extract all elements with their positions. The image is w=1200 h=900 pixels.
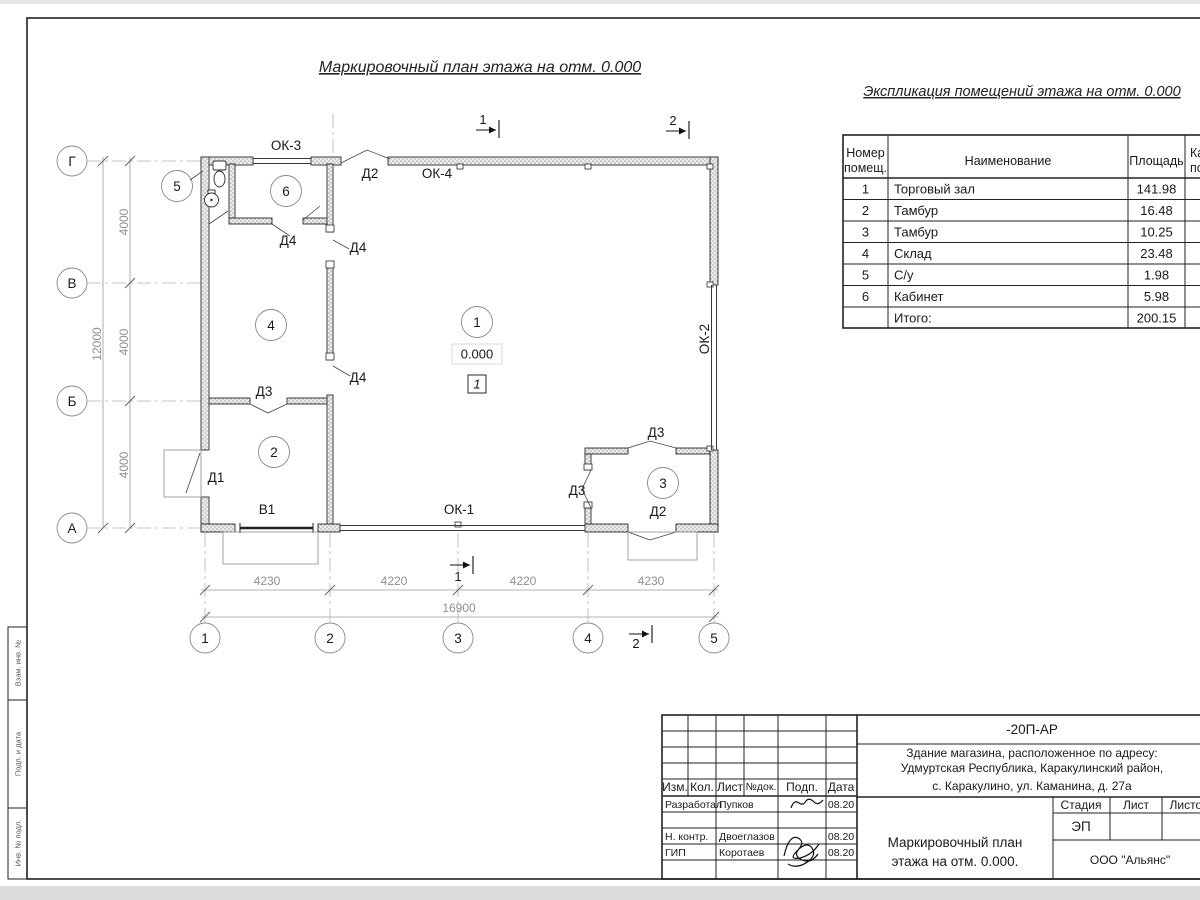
- object-line-1: Здание магазина, расположенное по адресу…: [906, 746, 1157, 760]
- plan-title: Маркировочный план этажа на отм. 0.000: [319, 59, 641, 76]
- row1-name: Торговый зал: [894, 182, 975, 197]
- room-2: 2: [270, 445, 278, 460]
- section-1-bottom: 1: [454, 569, 461, 584]
- door-label-d2-top: Д2: [362, 166, 379, 181]
- total-area: 200.15: [1137, 311, 1177, 326]
- stamp-cell-3: Инв. № подл.: [14, 820, 23, 867]
- floor-type-mark: 1: [473, 377, 480, 392]
- row2-num: 2: [862, 203, 869, 218]
- spec-header-area: Площадь: [1129, 154, 1183, 168]
- spec-header-num-2: помещ.: [844, 161, 887, 175]
- date-ncontrol: 08.20: [828, 831, 854, 843]
- doc-code: -20П-АР: [1006, 722, 1058, 737]
- room-6: 6: [282, 184, 290, 199]
- name-gip: Коротаев: [719, 847, 765, 859]
- axis-5: 5: [710, 631, 718, 646]
- stamp-cell-2: Подп. и дата: [14, 731, 23, 776]
- dim-4220-b: 4220: [510, 574, 537, 588]
- dim-4220-a: 4220: [381, 574, 408, 588]
- row6-num: 6: [862, 289, 869, 304]
- total-label: Итого:: [894, 311, 932, 326]
- door-label-d1: Д1: [208, 470, 225, 485]
- row4-name: Склад: [894, 246, 932, 261]
- stage-value: ЭП: [1071, 819, 1090, 834]
- col-izm: Изм.: [662, 780, 688, 794]
- window-label-ok4: ОК-4: [422, 166, 453, 181]
- elevation-value: 0.000: [461, 347, 494, 362]
- dim-4000-b: 4000: [117, 328, 131, 355]
- axis-v: В: [67, 276, 76, 291]
- room-3: 3: [659, 476, 667, 491]
- row5-num: 5: [862, 268, 869, 283]
- row3-num: 3: [862, 225, 869, 240]
- axis-2: 2: [326, 631, 334, 646]
- col-podp: Подп.: [786, 780, 818, 794]
- row4-num: 4: [862, 246, 869, 261]
- doc-title-line-1: Маркировочный план: [888, 835, 1023, 850]
- row5-name: С/у: [894, 268, 914, 283]
- door-label-d4-part1: Д4: [350, 240, 367, 255]
- row1-area: 141.98: [1137, 182, 1177, 197]
- row3-name: Тамбур: [894, 225, 938, 240]
- door-label-d4-part2: Д4: [350, 370, 367, 385]
- room-5: 5: [173, 179, 181, 194]
- list-label: Лист: [1123, 798, 1150, 812]
- window-label-ok3: ОК-3: [271, 138, 301, 153]
- window-label-ok2: ОК-2: [697, 324, 712, 354]
- dim-4230-b: 4230: [638, 574, 665, 588]
- dim-4000-a: 4000: [117, 208, 131, 235]
- row4-area: 23.48: [1140, 246, 1173, 261]
- door-label-d3-axis: Д3: [256, 384, 273, 399]
- spec-header-cut-1: Ка: [1190, 146, 1200, 160]
- section-1-top: 1: [479, 112, 486, 127]
- window-label-ok1: ОК-1: [444, 502, 474, 517]
- room-1: 1: [473, 315, 481, 330]
- row6-name: Кабинет: [894, 289, 943, 304]
- door-label-d4-room6: Д4: [280, 233, 297, 248]
- row6-area: 5.98: [1144, 289, 1169, 304]
- axis-4: 4: [584, 631, 592, 646]
- role-developer: Разработал: [665, 799, 722, 811]
- spec-title: Экспликация помещений этажа на отм. 0.00…: [863, 84, 1180, 100]
- role-gip: ГИП: [665, 847, 686, 859]
- doc-title-line-2: этажа на отм. 0.000.: [892, 854, 1019, 869]
- date-developer: 08.20: [828, 799, 854, 811]
- dim-12000: 12000: [90, 327, 104, 361]
- axis-1: 1: [201, 631, 209, 646]
- toilet-icon: [213, 161, 226, 187]
- axis-a: А: [67, 521, 76, 536]
- section-2-top: 2: [669, 113, 676, 128]
- col-ndok: №док.: [746, 781, 777, 793]
- role-ncontrol: Н. контр.: [665, 831, 708, 843]
- listov-label: Листов: [1170, 798, 1200, 812]
- col-list: Лист: [717, 780, 744, 794]
- room-4: 4: [267, 318, 275, 333]
- dim-4000-c: 4000: [117, 451, 131, 478]
- axis-b: Б: [68, 394, 77, 409]
- axis-g: Г: [68, 154, 76, 169]
- spec-header-cut-2: по: [1190, 161, 1200, 175]
- stamp-cell-1: Взам. инв. №: [14, 640, 23, 686]
- row2-area: 16.48: [1140, 203, 1173, 218]
- row5-area: 1.98: [1144, 268, 1169, 283]
- dim-16900: 16900: [442, 601, 476, 615]
- dim-4230-a: 4230: [254, 574, 281, 588]
- name-ncontrol: Двоеглазов: [719, 831, 775, 843]
- section-2-bottom: 2: [632, 636, 639, 651]
- gate-label-v1: В1: [259, 502, 276, 517]
- drawing-sheet: Взам. инв. № Подп. и дата Инв. № подл. М…: [0, 0, 1200, 900]
- col-data: Дата: [828, 780, 855, 794]
- spec-header-name: Наименование: [965, 154, 1052, 168]
- door-label-d2-r3: Д2: [650, 504, 667, 519]
- object-line-2: Удмуртская Республика, Каракулинский рай…: [901, 761, 1164, 775]
- object-line-3: с. Каракулино, ул. Каманина, д. 27а: [932, 779, 1132, 793]
- row1-num: 1: [862, 182, 869, 197]
- spec-header-num-1: Номер: [846, 146, 885, 160]
- row2-name: Тамбур: [894, 203, 938, 218]
- axis-3: 3: [454, 631, 462, 646]
- date-gip: 08.20: [828, 847, 854, 859]
- door-label-d3-r3left: Д3: [569, 483, 586, 498]
- door-label-d3-r3top: Д3: [648, 425, 665, 440]
- col-kol: Кол.: [690, 780, 714, 794]
- name-developer: Пупков: [719, 799, 754, 811]
- company-name: ООО "Альянс": [1090, 853, 1170, 867]
- stage-label: Стадия: [1061, 798, 1102, 812]
- row3-area: 10.25: [1140, 225, 1173, 240]
